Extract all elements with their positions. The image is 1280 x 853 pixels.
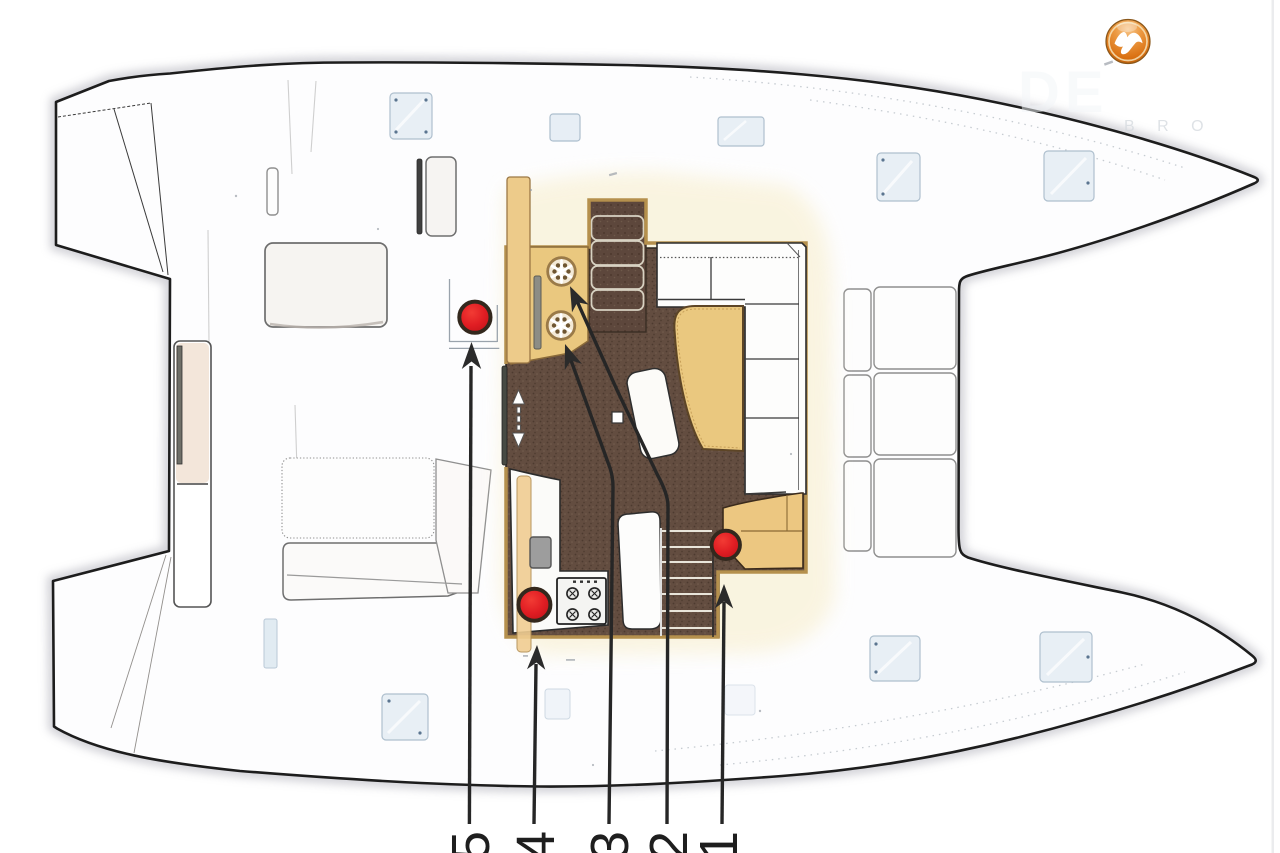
svg-text:B R O: B R O bbox=[1124, 118, 1213, 135]
svg-text:4: 4 bbox=[506, 831, 566, 853]
svg-text:5: 5 bbox=[441, 831, 501, 853]
svg-text:1: 1 bbox=[689, 831, 749, 853]
svg-text:3: 3 bbox=[580, 831, 640, 853]
svg-text:DE: DE bbox=[1018, 60, 1109, 125]
